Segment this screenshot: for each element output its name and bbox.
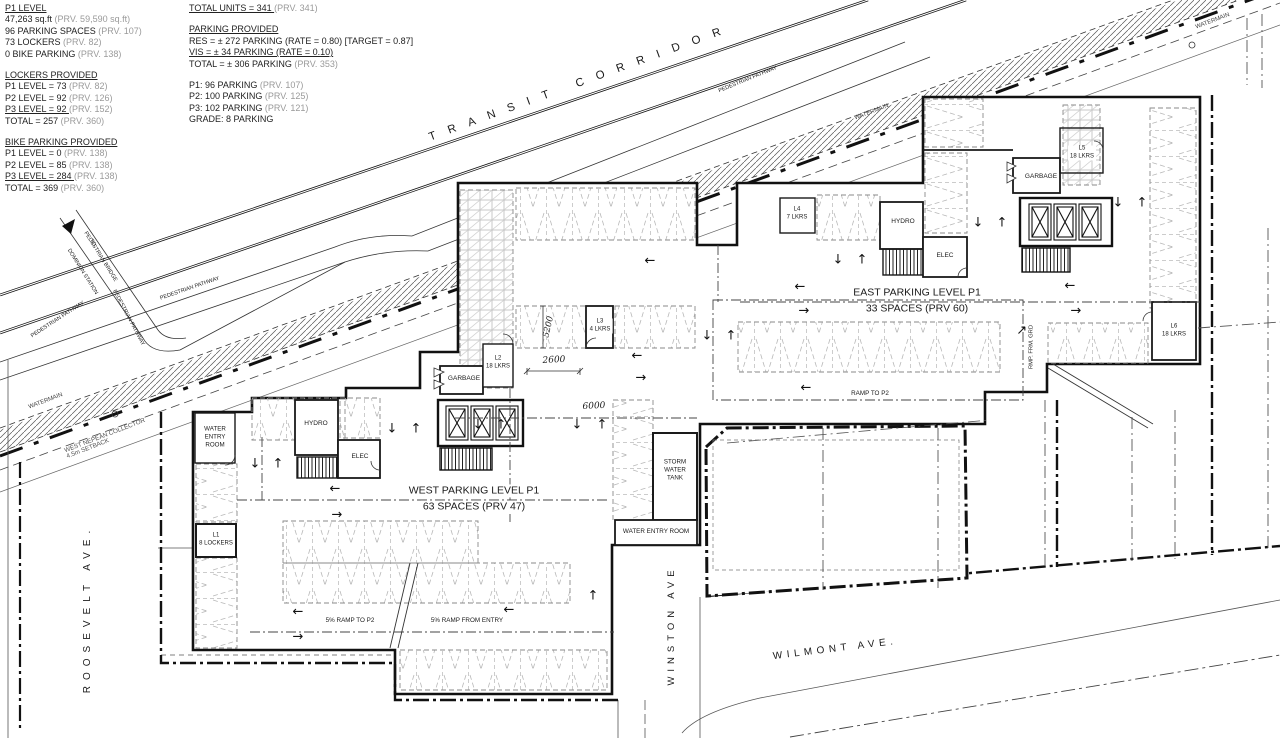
dim-6000: 6000	[582, 401, 605, 413]
ramp-to-p2-label: RAMP TO P2	[851, 390, 889, 398]
drive-aisle-arrow: ↓	[572, 419, 583, 432]
ramp-5pct-from-entry-label: 5% RAMP FROM ENTRY	[431, 617, 503, 625]
drive-aisle-arrow: →	[636, 372, 647, 385]
l2-lockers-label: L2 18 LKRS	[484, 356, 512, 371]
garbage-east-label: GARBAGE	[1023, 173, 1059, 181]
stats-line: P2 LEVEL = 85 (PRV. 138)	[5, 160, 142, 171]
stats-line: 47,263 sq.ft (PRV. 59,590 sq.ft)	[5, 14, 142, 25]
drive-aisle-arrow: ←	[330, 483, 341, 496]
stats-line: GRADE: 8 PARKING	[189, 114, 413, 125]
drive-aisle-arrow: ←	[645, 255, 656, 268]
drive-aisle-arrow: ←	[504, 604, 515, 617]
stats-line: BIKE PARKING PROVIDED	[5, 137, 142, 148]
stats-gap	[5, 60, 142, 70]
stats-gap	[189, 70, 413, 80]
drive-aisle-arrow: ←	[1065, 280, 1076, 293]
stats-line: 0 BIKE PARKING (PRV. 138)	[5, 49, 142, 60]
stats-line: P1 LEVEL = 73 (PRV. 82)	[5, 81, 142, 92]
parking-provided-stats-panel: TOTAL UNITS = 341 (PRV. 341)PARKING PROV…	[189, 3, 413, 126]
drive-aisle-arrow: ↓	[1113, 197, 1124, 210]
wilmont-curb-line	[682, 600, 1280, 733]
west-parking-title: WEST PARKING LEVEL P1	[407, 484, 542, 497]
stair-west-core	[440, 448, 492, 470]
site-plan-drawing: P1 LEVEL47,263 sq.ft (PRV. 59,590 sq.ft)…	[0, 0, 1280, 738]
east-parking-title: EAST PARKING LEVEL P1	[851, 286, 983, 299]
stats-line: P2 LEVEL = 92 (PRV. 126)	[5, 93, 142, 104]
stats-line: PARKING PROVIDED	[189, 24, 413, 35]
water-entry-room-south-label: WATER ENTRY ROOM	[621, 528, 691, 536]
stats-line: P3: 102 PARKING (PRV. 121)	[189, 103, 413, 114]
drive-aisle-arrow: →	[293, 631, 304, 644]
stats-line: P1 LEVEL	[5, 3, 142, 14]
drive-aisle-arrow: ←	[293, 606, 304, 619]
drive-aisle-arrow: →	[332, 509, 343, 522]
roosevelt-ave-label: ROOSEVELT AVE.	[82, 525, 95, 699]
l1-lockers-label: L1 8 LOCKERS	[199, 533, 233, 548]
drive-aisle-arrow: ↑	[857, 254, 868, 267]
drive-aisle-arrow: ↑	[726, 330, 737, 343]
stats-line: P3 LEVEL = 92 (PRV. 152)	[5, 104, 142, 115]
stats-gap	[189, 14, 413, 24]
drive-aisle-arrow: ↑	[997, 217, 1008, 230]
winston-ave-label: WINSTON AVE	[666, 565, 678, 690]
drive-aisle-arrow: ↑	[588, 590, 599, 603]
drive-aisle-arrow: →	[1071, 305, 1082, 318]
l4-lockers-label: L4 7 LKRS	[785, 207, 810, 222]
stats-line: P1: 96 PARKING (PRV. 107)	[189, 80, 413, 91]
water-entry-room-west-label: WATER ENTRY ROOM	[204, 425, 226, 448]
drive-aisle-arrow: ↓	[702, 330, 713, 343]
hydro-east-label: HYDRO	[891, 218, 914, 226]
drive-aisle-arrow: ←	[632, 350, 643, 363]
stats-gap	[5, 127, 142, 137]
drive-aisle-arrow: ↓	[473, 419, 484, 432]
storm-water-tank-label: STORM WATER TANK	[664, 458, 686, 481]
watermain-valve-icon	[1189, 42, 1195, 48]
hydro-west-label: HYDRO	[304, 420, 327, 428]
courtyard-outline	[706, 420, 990, 596]
drive-aisle-arrow: ↓	[250, 458, 261, 471]
drive-aisle-arrow: ←	[801, 382, 812, 395]
stats-line: 73 LOCKERS (PRV. 82)	[5, 37, 142, 48]
stair-east-core	[1022, 248, 1070, 272]
drive-aisle-arrow: ↓	[387, 423, 398, 436]
ramp-from-grade-label: RMP. FRM. GRD	[1028, 325, 1035, 369]
l5-lockers-label: L5 18 LKRS	[1068, 146, 1096, 161]
garbage-west-label: GARBAGE	[446, 375, 482, 383]
drive-aisle-arrow: ↑	[411, 423, 422, 436]
east-parking-count: 33 SPACES (PRV 60)	[864, 302, 970, 315]
bridge-direction-arrow	[62, 219, 75, 234]
stats-line: RES = ± 272 PARKING (RATE = 0.80) [TARGE…	[189, 36, 413, 47]
l3-lockers-label: L3 4 LKRS	[588, 319, 613, 334]
drive-aisle-arrow: ↑	[496, 419, 507, 432]
drive-aisle-arrow: ←	[795, 281, 806, 294]
wilmont-centerline	[790, 655, 1280, 737]
drive-aisle-arrow: ↑	[1137, 197, 1148, 210]
drive-aisle-arrow: ↓	[973, 217, 984, 230]
stats-line: VIS = ± 34 PARKING (RATE = 0.10)	[189, 47, 413, 58]
stats-line: TOTAL = 257 (PRV. 360)	[5, 116, 142, 127]
drive-aisle-arrow: ↑	[597, 419, 608, 432]
stats-line: 96 PARKING SPACES (PRV. 107)	[5, 26, 142, 37]
elec-west-label: ELEC	[352, 453, 369, 461]
dim-2600: 2600	[542, 355, 565, 367]
stats-line: P3 LEVEL = 284 (PRV. 138)	[5, 171, 142, 182]
drive-aisle-arrow: →	[799, 305, 810, 318]
stats-line: TOTAL UNITS = 341 (PRV. 341)	[189, 3, 413, 14]
stats-line: TOTAL = 369 (PRV. 360)	[5, 183, 142, 194]
elec-east-label: ELEC	[937, 252, 954, 260]
stats-line: TOTAL = ± 306 PARKING (PRV. 353)	[189, 59, 413, 70]
drive-aisle-arrow: ↓	[833, 254, 844, 267]
l6-lockers-label: L6 18 LKRS	[1160, 324, 1188, 339]
drive-aisle-arrow: ↑	[273, 458, 284, 471]
stats-line: P2: 100 PARKING (PRV. 125)	[189, 91, 413, 102]
west-parking-count: 63 SPACES (PRV 47)	[421, 500, 527, 513]
stats-line: LOCKERS PROVIDED	[5, 70, 142, 81]
stats-line: P1 LEVEL = 0 (PRV. 138)	[5, 148, 142, 159]
ramp-5pct-to-p2-label: 5% RAMP TO P2	[326, 617, 375, 625]
p1-level-stats-panel: P1 LEVEL47,263 sq.ft (PRV. 59,590 sq.ft)…	[5, 3, 142, 194]
